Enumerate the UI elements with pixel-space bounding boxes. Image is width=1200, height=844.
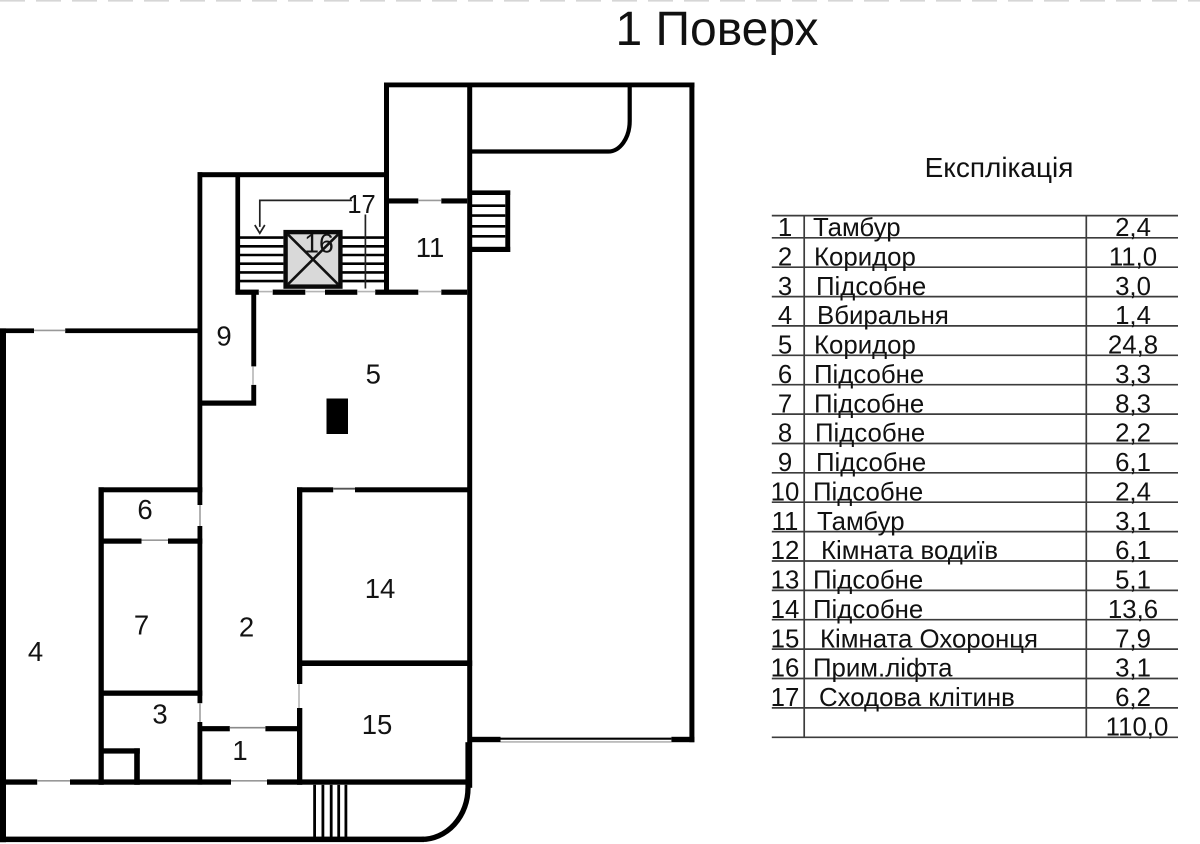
svg-text:Сходова клітинв: Сходова клітинв — [819, 684, 1015, 712]
svg-text:7: 7 — [778, 390, 792, 418]
svg-text:2: 2 — [778, 243, 792, 271]
svg-text:Експлікація: Експлікація — [925, 152, 1074, 183]
svg-text:13,6: 13,6 — [1108, 596, 1158, 624]
svg-text:3,1: 3,1 — [1115, 508, 1151, 536]
svg-text:6,1: 6,1 — [1115, 537, 1151, 565]
svg-text:5,1: 5,1 — [1115, 567, 1151, 595]
svg-text:Тамбур: Тамбур — [813, 214, 901, 242]
svg-text:3,1: 3,1 — [1115, 655, 1151, 683]
svg-text:24,8: 24,8 — [1108, 332, 1158, 360]
svg-text:4: 4 — [778, 302, 792, 330]
svg-text:2,2: 2,2 — [1115, 420, 1151, 448]
svg-text:Коридор: Коридор — [814, 332, 916, 360]
svg-text:11,0: 11,0 — [1109, 243, 1157, 271]
svg-text:4: 4 — [28, 636, 43, 667]
svg-text:6,1: 6,1 — [1115, 449, 1151, 477]
svg-text:Вбиральня: Вбиральня — [817, 302, 949, 330]
svg-text:11: 11 — [772, 508, 799, 536]
svg-text:Підсобне: Підсобне — [816, 273, 926, 301]
svg-text:3,3: 3,3 — [1115, 361, 1151, 389]
svg-text:16: 16 — [771, 655, 800, 683]
svg-text:Підсобне: Підсобне — [814, 361, 924, 389]
svg-text:Підсобне: Підсобне — [816, 449, 926, 477]
svg-text:9: 9 — [778, 449, 792, 477]
svg-text:3: 3 — [152, 699, 167, 730]
svg-text:Підсобне: Підсобне — [813, 478, 923, 506]
svg-text:16: 16 — [304, 229, 333, 259]
svg-text:Підсобне: Підсобне — [813, 596, 923, 624]
svg-text:3: 3 — [778, 273, 792, 301]
svg-text:Підсобне: Підсобне — [813, 567, 923, 595]
svg-text:110,0: 110,0 — [1106, 714, 1169, 742]
svg-text:Прим.ліфта: Прим.ліфта — [813, 655, 953, 683]
svg-text:17: 17 — [347, 191, 375, 219]
svg-text:1,4: 1,4 — [1115, 302, 1151, 330]
svg-text:8,3: 8,3 — [1115, 390, 1151, 418]
svg-text:6: 6 — [137, 494, 152, 525]
svg-text:15: 15 — [771, 625, 800, 653]
svg-text:6: 6 — [778, 361, 792, 389]
svg-text:7,9: 7,9 — [1115, 625, 1151, 653]
svg-text:6,2: 6,2 — [1115, 684, 1151, 712]
svg-text:Підсобне: Підсобне — [815, 420, 925, 448]
svg-text:1: 1 — [232, 735, 247, 766]
svg-text:17: 17 — [771, 684, 800, 712]
svg-text:1 Поверх: 1 Поверх — [615, 3, 818, 56]
svg-text:9: 9 — [216, 321, 231, 352]
svg-text:13: 13 — [771, 567, 800, 595]
svg-text:1: 1 — [778, 214, 792, 242]
svg-text:10: 10 — [771, 478, 800, 506]
svg-text:Кімната Охоронця: Кімната Охоронця — [820, 625, 1038, 653]
svg-text:Підсобне: Підсобне — [814, 390, 924, 418]
svg-text:Коридор: Коридор — [814, 243, 916, 271]
svg-text:2: 2 — [239, 612, 254, 643]
svg-text:11: 11 — [416, 232, 445, 263]
svg-text:2,4: 2,4 — [1115, 214, 1151, 242]
svg-text:7: 7 — [134, 610, 149, 641]
svg-text:14: 14 — [365, 573, 396, 604]
svg-text:5: 5 — [366, 359, 381, 390]
svg-text:14: 14 — [771, 596, 800, 624]
svg-text:8: 8 — [778, 420, 792, 448]
svg-text:12: 12 — [771, 537, 800, 565]
svg-text:Тамбур: Тамбур — [817, 508, 905, 536]
svg-text:Кімната водиїв: Кімната водиїв — [821, 537, 998, 565]
svg-text:15: 15 — [362, 709, 393, 740]
svg-text:2,4: 2,4 — [1115, 478, 1151, 506]
svg-text:5: 5 — [778, 332, 792, 360]
svg-text:3,0: 3,0 — [1115, 273, 1151, 301]
